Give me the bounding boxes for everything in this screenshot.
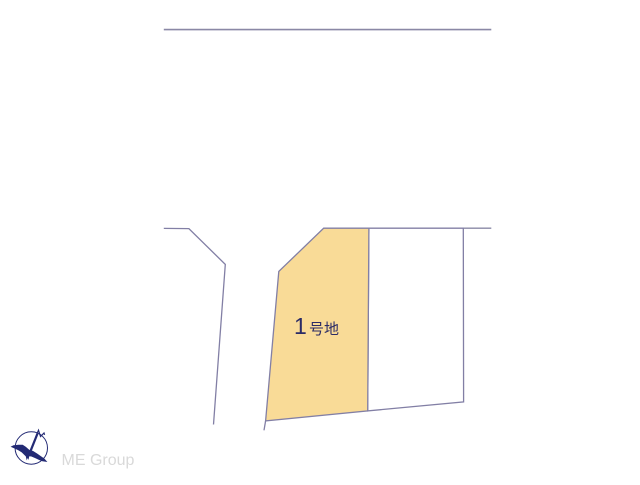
svg-text:ME Group: ME Group [62,452,135,469]
svg-text:号地: 号地 [309,321,339,338]
svg-text:1: 1 [294,313,307,339]
